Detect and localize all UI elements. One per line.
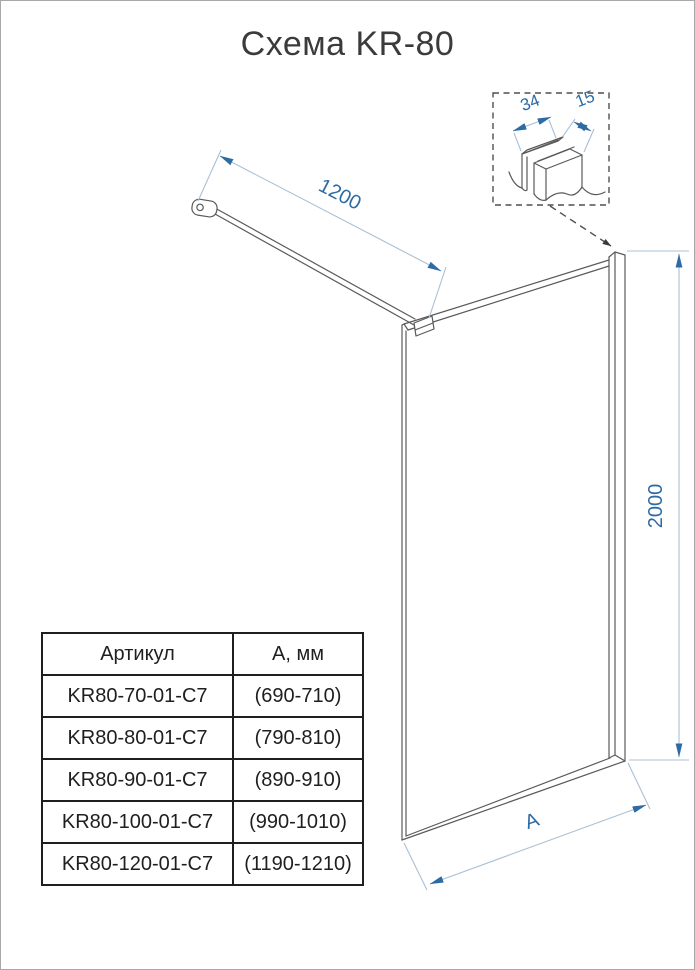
detail-dashed-box [493,93,609,205]
article-cell: KR80-120-01-C7 [42,843,233,885]
dim-34-label: 34 [518,91,542,116]
table-row: KR80-80-01-C7 (790-810) [42,717,363,759]
table-row: KR80-90-01-C7 (890-910) [42,759,363,801]
article-cell: KR80-100-01-C7 [42,801,233,843]
dim-15-label: 15 [573,87,597,112]
wall-profile-sketch [509,137,605,200]
table-row: KR80-70-01-C7 (690-710) [42,675,363,717]
detail-leader-arrow [550,206,611,246]
table-row: KR80-100-01-C7 (990-1010) [42,801,363,843]
detail-view: 34 15 [493,87,611,246]
size-header: А, мм [233,633,363,675]
article-cell: KR80-70-01-C7 [42,675,233,717]
glass-panel [402,252,625,840]
bar-clamp [414,316,434,336]
dimension-1200: 1200 [198,150,446,318]
dim-a-label: A [522,809,543,834]
wall-profile [609,252,625,761]
dim-2000-label: 2000 [645,484,667,529]
size-cell: (990-1010) [233,801,363,843]
dimension-15: 15 [563,87,597,152]
size-cell: (690-710) [233,675,363,717]
table-header-row: Артикул А, мм [42,633,363,675]
size-cell: (1190-1210) [233,843,363,885]
article-header: Артикул [42,633,233,675]
schematic-page: Схема KR-80 [0,0,695,970]
wall-bracket [191,198,218,218]
article-cell: KR80-80-01-C7 [42,717,233,759]
size-cell: (890-910) [233,759,363,801]
article-cell: KR80-90-01-C7 [42,759,233,801]
article-size-table: Артикул А, мм KR80-70-01-C7 (690-710) KR… [41,632,364,886]
dimension-2000: 2000 [627,251,689,760]
size-cell: (790-810) [233,717,363,759]
support-bar [191,198,415,325]
table-row: KR80-120-01-C7 (1190-1210) [42,843,363,885]
